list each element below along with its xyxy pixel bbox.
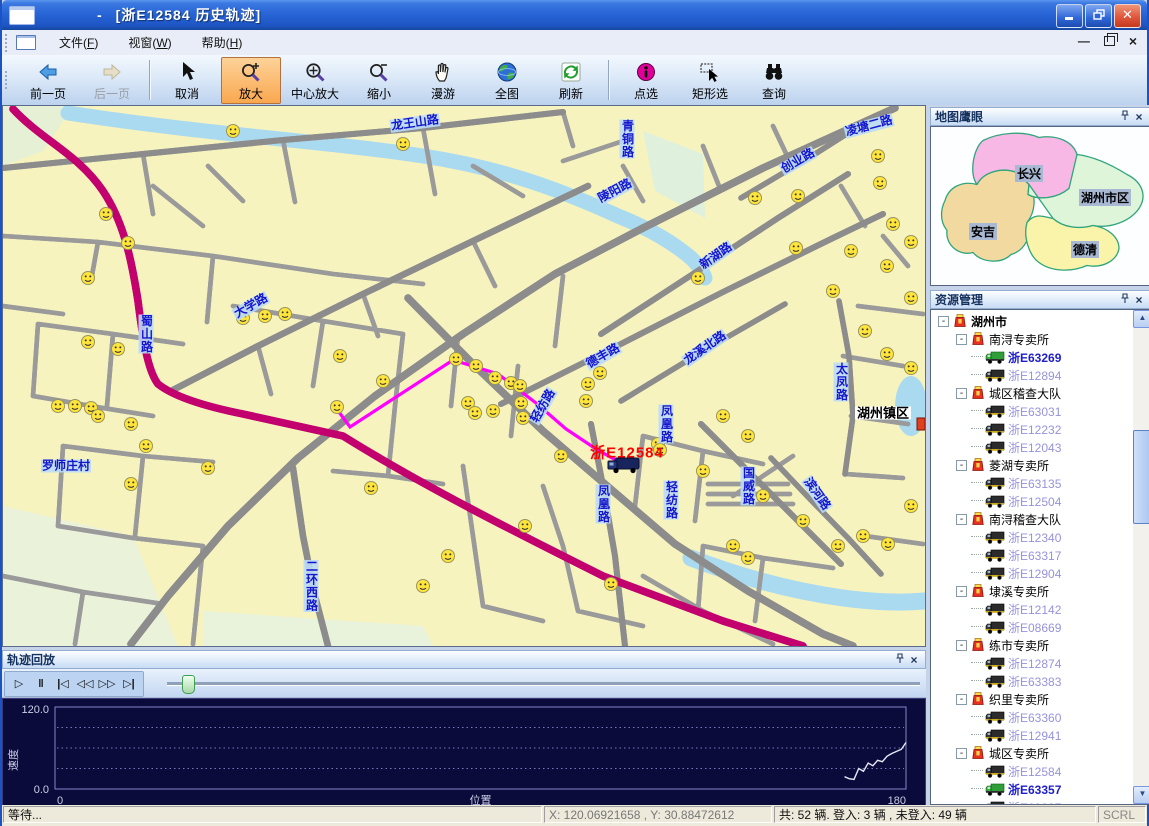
truck-dark-icon <box>985 674 1005 688</box>
smiley-marker[interactable] <box>594 367 607 380</box>
tree-row[interactable]: 浙E08669 <box>931 618 1133 636</box>
cancel-button[interactable]: 取消 <box>157 57 217 104</box>
tree-row[interactable]: 浙E12904 <box>931 564 1133 582</box>
zoom-out-button[interactable]: 缩小 <box>349 57 409 104</box>
refresh-button[interactable]: 刷新 <box>541 57 601 104</box>
org-icon <box>970 331 986 347</box>
playback-controls: ▷‖|◁◁◁▷▷▷| <box>2 669 926 698</box>
resources-title: 资源管理 <box>935 291 1118 308</box>
smiley-marker[interactable] <box>397 138 410 151</box>
vehicle-plate-label: 浙E12504 <box>1008 493 1061 510</box>
smiley-marker[interactable] <box>377 375 390 388</box>
vehicle-plate-label: 浙E12941 <box>1008 727 1061 744</box>
smiley-marker[interactable] <box>582 378 595 391</box>
scroll-down-icon[interactable]: ▼ <box>1133 786 1149 804</box>
tree-node-label: 练市专卖所 <box>989 637 1049 654</box>
smiley-marker[interactable] <box>450 353 463 366</box>
tree-row[interactable]: 浙E12941 <box>931 726 1133 744</box>
org-icon <box>970 385 986 401</box>
collapse-icon[interactable]: - <box>956 586 967 597</box>
region-label-deqing: 德清 <box>1071 241 1099 258</box>
org-icon <box>970 457 986 473</box>
smiley-marker[interactable] <box>881 348 894 361</box>
truck-dark-icon <box>985 728 1005 742</box>
status-message: 等待... <box>3 806 542 823</box>
truck-dark-icon <box>985 620 1005 634</box>
smiley-marker[interactable] <box>692 272 705 285</box>
collapse-icon[interactable]: - <box>938 316 949 327</box>
vehicle-plate-label: 浙E12904 <box>1008 565 1061 582</box>
smiley-marker[interactable] <box>112 343 125 356</box>
tree-row[interactable]: 浙E63269 <box>931 348 1133 366</box>
tree-node-label: 菱湖专卖所 <box>989 457 1049 474</box>
cursor-icon <box>175 60 199 84</box>
smiley-marker[interactable] <box>470 360 483 373</box>
tree-node-label: 南浔稽查大队 <box>989 511 1061 528</box>
collapse-icon[interactable]: - <box>956 694 967 705</box>
smiley-marker[interactable] <box>697 465 710 478</box>
tree-node-label: 城区稽查大队 <box>989 385 1061 402</box>
close-icon[interactable]: × <box>1132 293 1146 307</box>
smiley-marker[interactable] <box>874 177 887 190</box>
tree-node-label: 埭溪专卖所 <box>989 583 1049 600</box>
resources-header: 资源管理 × <box>930 290 1149 309</box>
title-dash: - <box>97 7 102 23</box>
smiley-marker[interactable] <box>69 400 82 413</box>
smiley-marker[interactable] <box>859 325 872 338</box>
map-viewport[interactable]: 龙王山路青铜路陵阳路创业路凌塘二路新湖路大学路蜀山路德丰路龙溪北路轻纺路轻纺路凤… <box>2 105 926 647</box>
smiley-marker[interactable] <box>905 500 918 513</box>
smiley-marker[interactable] <box>519 520 532 533</box>
minimize-button[interactable] <box>1056 4 1083 28</box>
play-button[interactable]: ▷ <box>8 674 30 694</box>
smiley-marker[interactable] <box>580 395 593 408</box>
right-dock: 地图鹰眼 × 长兴 湖州市区 安吉 德清 资 <box>930 105 1149 805</box>
truck-green-icon <box>985 350 1005 364</box>
point-select-button[interactable]: 点选 <box>616 57 676 104</box>
arrow-left-icon <box>36 60 60 84</box>
vehicle-plate-label: 浙E63360 <box>1008 709 1061 726</box>
smiley-marker[interactable] <box>82 272 95 285</box>
smiley-marker[interactable] <box>442 550 455 563</box>
tree-node-label: 城区专卖所 <box>989 745 1049 762</box>
toolbar-separator <box>149 60 150 100</box>
application-window: - [浙E12584 历史轨迹] ✕ 文件(F)视窗(W)帮助(H) — × 前… <box>0 0 1149 826</box>
status-vehicle-counts: 共: 52 辆. 登入: 3 辆 , 未登入: 49 辆 <box>774 806 1096 823</box>
tree-row[interactable]: 浙E63317 <box>931 546 1133 564</box>
tree-row[interactable]: -湖州市 <box>931 312 1133 330</box>
smiley-marker[interactable] <box>331 401 344 414</box>
full-map-button[interactable]: 全图 <box>477 57 537 104</box>
tree-row[interactable]: 浙E63383 <box>931 672 1133 690</box>
vehicle-plate-label: 浙E12043 <box>1008 439 1061 456</box>
mdi-close-button[interactable]: × <box>1129 33 1137 49</box>
poi-icon <box>917 418 925 430</box>
vehicle-plate-label: 浙E12142 <box>1008 601 1061 618</box>
tree-row[interactable]: 浙E63360 <box>931 708 1133 726</box>
tree-row[interactable]: 浙E12043 <box>931 438 1133 456</box>
truck-dark-icon <box>985 800 1005 804</box>
tree-node-label: 湖州市 <box>971 313 1007 330</box>
smiley-marker[interactable] <box>832 540 845 553</box>
smiley-marker[interactable] <box>887 218 900 231</box>
skip-end-button[interactable]: ▷| <box>118 674 140 694</box>
menu-bar: 文件(F)视窗(W)帮助(H) — × <box>2 30 1147 56</box>
smiley-marker[interactable] <box>100 208 113 221</box>
tree-row[interactable]: 浙E12894 <box>931 366 1133 384</box>
speed-chart: 120.00.0速度0180位置 <box>2 698 926 808</box>
vehicle-plate-label: 浙E09387 <box>1008 799 1061 805</box>
vehicle-plate-label: 浙E08669 <box>1008 619 1061 636</box>
app-icon <box>9 6 35 25</box>
smiley-marker[interactable] <box>417 580 430 593</box>
restore-button[interactable] <box>1085 4 1112 28</box>
slider-thumb[interactable] <box>182 675 195 694</box>
tree-row[interactable]: 浙E12504 <box>931 492 1133 510</box>
smiley-marker[interactable] <box>757 490 770 503</box>
zoom-out-icon <box>367 60 391 84</box>
mdi-child-icon[interactable] <box>16 35 36 50</box>
org-icon <box>970 511 986 527</box>
smiley-marker[interactable] <box>237 312 250 325</box>
collapse-icon[interactable]: - <box>956 460 967 471</box>
tree-row[interactable]: -埭溪专卖所 <box>931 582 1133 600</box>
smiley-marker[interactable] <box>605 578 618 591</box>
playback-title: 轨迹回放 <box>7 651 893 668</box>
smiley-marker[interactable] <box>727 540 740 553</box>
zoom-center-icon <box>303 60 327 84</box>
vehicle-plate-label: 浙E12584 <box>1008 763 1061 780</box>
smiley-marker[interactable] <box>140 440 153 453</box>
smiley-marker[interactable] <box>742 430 755 443</box>
pause-button[interactable]: ‖ <box>30 674 52 694</box>
title-bar: - [浙E12584 历史轨迹] ✕ <box>2 0 1147 30</box>
org-icon <box>970 745 986 761</box>
smiley-marker[interactable] <box>882 538 895 551</box>
tree-row[interactable]: 浙E09387 <box>931 798 1133 804</box>
org-icon <box>970 691 986 707</box>
tree-row[interactable]: 浙E63135 <box>931 474 1133 492</box>
org-icon <box>970 583 986 599</box>
skip-start-button[interactable]: |◁ <box>52 674 74 694</box>
truck-dark-icon <box>985 422 1005 436</box>
smiley-marker[interactable] <box>881 260 894 273</box>
smiley-marker[interactable] <box>905 362 918 375</box>
collapse-icon[interactable]: - <box>956 640 967 651</box>
smiley-marker[interactable] <box>905 236 918 249</box>
smiley-marker[interactable] <box>790 242 803 255</box>
smiley-marker[interactable] <box>749 192 762 205</box>
smiley-marker[interactable] <box>259 310 272 323</box>
tree-row[interactable]: -菱湖专卖所 <box>931 456 1133 474</box>
tree-row[interactable]: 浙E63357 <box>931 780 1133 798</box>
workspace: 龙王山路青铜路陵阳路创业路凌塘二路新湖路大学路蜀山路德丰路龙溪北路轻纺路轻纺路凤… <box>2 105 1149 805</box>
smiley-marker[interactable] <box>125 418 138 431</box>
truck-dark-icon <box>985 440 1005 454</box>
pan-hand-icon <box>431 60 455 84</box>
smiley-marker[interactable] <box>469 407 482 420</box>
smiley-marker[interactable] <box>797 515 810 528</box>
smiley-marker[interactable] <box>489 372 502 385</box>
menu-help[interactable]: 帮助(H) <box>193 31 252 54</box>
smiley-marker[interactable] <box>514 380 527 393</box>
vehicle-plate-label: 浙E63357 <box>1008 781 1061 798</box>
vehicle-plate-label: 浙E12232 <box>1008 421 1061 438</box>
tree-row[interactable]: 浙E63031 <box>931 402 1133 420</box>
smiley-marker[interactable] <box>742 552 755 565</box>
scroll-up-icon[interactable]: ▲ <box>1133 310 1149 328</box>
smiley-marker[interactable] <box>279 308 292 321</box>
zoom-in-icon <box>239 60 263 84</box>
eagle-eye-map[interactable]: 长兴 湖州市区 安吉 德清 <box>930 126 1149 286</box>
region-label-anji: 安吉 <box>969 223 997 240</box>
tree-row[interactable]: -城区稽查大队 <box>931 384 1133 402</box>
toolbar: 前一页后一页取消放大中心放大缩小漫游全图刷新点选矩形选查询 <box>2 55 1147 107</box>
truck-dark-icon <box>985 494 1005 508</box>
pan-button[interactable]: 漫游 <box>413 57 473 104</box>
tree-row[interactable]: 浙E12340 <box>931 528 1133 546</box>
smiley-marker[interactable] <box>227 125 240 138</box>
truck-dark-icon <box>985 548 1005 562</box>
playback-header: 轨迹回放 × <box>2 650 926 669</box>
smiley-marker[interactable] <box>555 450 568 463</box>
query-button[interactable]: 查询 <box>744 57 804 104</box>
tree-row[interactable]: 浙E12874 <box>931 654 1133 672</box>
prev-page-button[interactable]: 前一页 <box>18 57 78 104</box>
smiley-marker[interactable] <box>365 482 378 495</box>
smiley-marker[interactable] <box>517 412 530 425</box>
info-select-icon <box>634 60 658 84</box>
tree-row[interactable]: -南浔专卖所 <box>931 330 1133 348</box>
truck-dark-icon <box>985 368 1005 382</box>
tree-row[interactable]: -城区专卖所 <box>931 744 1133 762</box>
smiley-marker[interactable] <box>52 400 65 413</box>
region-label-huzhou: 湖州市区 <box>1079 189 1131 206</box>
vehicle-plate-label: 浙E63269 <box>1008 349 1061 366</box>
org-icon <box>952 313 968 329</box>
resource-tree: -湖州市-南浔专卖所浙E63269浙E12894-城区稽查大队浙E63031浙E… <box>931 310 1133 804</box>
tree-row[interactable]: 浙E12142 <box>931 600 1133 618</box>
resource-tree-panel: -湖州市-南浔专卖所浙E63269浙E12894-城区稽查大队浙E63031浙E… <box>930 309 1149 805</box>
menu-grip[interactable] <box>5 34 12 52</box>
pin-icon[interactable] <box>893 653 907 667</box>
smiley-marker[interactable] <box>845 245 858 258</box>
collapse-icon[interactable]: - <box>956 748 967 759</box>
vehicle-plate-label: 浙E63135 <box>1008 475 1061 492</box>
menu-file[interactable]: 文件(F) <box>50 31 107 54</box>
truck-dark-icon <box>985 602 1005 616</box>
smiley-marker[interactable] <box>202 462 215 475</box>
truck-green-icon <box>985 782 1005 796</box>
status-bar: 等待... X: 120.06921658 , Y: 30.88472612 共… <box>2 805 1147 826</box>
toolbar-grip[interactable] <box>5 71 12 89</box>
pin-icon[interactable] <box>1118 110 1132 124</box>
fast-forward-button[interactable]: ▷▷ <box>96 674 118 694</box>
smiley-marker[interactable] <box>827 285 840 298</box>
truck-dark-icon <box>985 476 1005 490</box>
tree-row[interactable]: 浙E12584 <box>931 762 1133 780</box>
smiley-marker[interactable] <box>792 190 805 203</box>
playback-panel: 轨迹回放 × ▷‖|◁◁◁▷▷▷| 120.00.0速度0180位置 <box>2 650 926 808</box>
org-icon <box>970 637 986 653</box>
rect-select-icon <box>698 60 722 84</box>
binoculars-icon <box>762 60 786 84</box>
tree-scrollbar[interactable]: ▲ ▼ <box>1133 310 1149 804</box>
truck-dark-icon <box>985 656 1005 670</box>
status-scroll-lock: SCRL <box>1098 806 1146 823</box>
playback-slider[interactable] <box>167 675 920 691</box>
close-icon[interactable]: × <box>907 653 921 667</box>
truck-dark-icon <box>985 764 1005 778</box>
scroll-thumb[interactable] <box>1133 430 1149 524</box>
svg-text:120.0: 120.0 <box>21 704 49 716</box>
smiley-marker[interactable] <box>515 397 528 410</box>
slider-groove[interactable] <box>167 682 920 686</box>
globe-icon <box>495 60 519 84</box>
vehicle-plate-label: 浙E12894 <box>1008 367 1061 384</box>
smiley-marker[interactable] <box>905 292 918 305</box>
smiley-marker[interactable] <box>857 530 870 543</box>
vehicle-plate-label: 浙E12874 <box>1008 655 1061 672</box>
pin-icon[interactable] <box>1118 293 1132 307</box>
rect-select-button[interactable]: 矩形选 <box>680 57 740 104</box>
arrow-right-icon <box>100 60 124 84</box>
smiley-marker[interactable] <box>654 444 667 457</box>
vehicle-plate-label: 浙E63031 <box>1008 403 1061 420</box>
collapse-icon[interactable]: - <box>956 334 967 345</box>
smiley-marker[interactable] <box>92 410 105 423</box>
mdi-restore-button[interactable] <box>1104 36 1115 46</box>
vehicle-plate-label: 浙E12340 <box>1008 529 1061 546</box>
tree-row[interactable]: -南浔稽查大队 <box>931 510 1133 528</box>
vehicle-plate-label: 浙E63317 <box>1008 547 1061 564</box>
tree-node-label: 南浔专卖所 <box>989 331 1049 348</box>
next-page-button[interactable]: 后一页 <box>82 57 142 104</box>
close-icon[interactable]: × <box>1132 110 1146 124</box>
vehicle-plate-label: 浙E63383 <box>1008 673 1061 690</box>
svg-text:0.0: 0.0 <box>34 784 49 796</box>
center-zoom-button[interactable]: 中心放大 <box>285 57 345 104</box>
smiley-marker[interactable] <box>82 336 95 349</box>
rewind-button[interactable]: ◁◁ <box>74 674 96 694</box>
collapse-icon[interactable]: - <box>956 514 967 525</box>
truck-dark-icon <box>985 710 1005 724</box>
smiley-marker[interactable] <box>487 405 500 418</box>
zoom-in-button[interactable]: 放大 <box>221 57 281 104</box>
tree-row[interactable]: 浙E12232 <box>931 420 1133 438</box>
smiley-marker[interactable] <box>125 478 138 491</box>
close-button[interactable]: ✕ <box>1114 4 1141 28</box>
smiley-marker[interactable] <box>717 410 730 423</box>
refresh-icon <box>559 60 583 84</box>
tree-node-label: 织里专卖所 <box>989 691 1049 708</box>
truck-dark-icon <box>985 530 1005 544</box>
status-coordinates: X: 120.06921658 , Y: 30.88472612 <box>544 806 772 823</box>
mdi-minimize-button[interactable]: — <box>1078 34 1090 48</box>
smiley-marker[interactable] <box>872 150 885 163</box>
window-title: [浙E12584 历史轨迹] <box>116 5 261 25</box>
region-anji[interactable] <box>942 170 1035 261</box>
eagle-eye-title: 地图鹰眼 <box>935 108 1118 125</box>
menu-window[interactable]: 视窗(W) <box>119 31 180 54</box>
toolbar-separator <box>608 60 609 100</box>
smiley-marker[interactable] <box>122 237 135 250</box>
collapse-icon[interactable]: - <box>956 388 967 399</box>
map-canvas[interactable] <box>3 106 925 646</box>
tree-row[interactable]: -织里专卖所 <box>931 690 1133 708</box>
tree-row[interactable]: -练市专卖所 <box>931 636 1133 654</box>
eagle-eye-header: 地图鹰眼 × <box>930 107 1149 126</box>
svg-text:速度: 速度 <box>6 749 20 771</box>
region-label-changxing: 长兴 <box>1015 165 1043 182</box>
smiley-marker[interactable] <box>334 350 347 363</box>
truck-dark-icon <box>985 404 1005 418</box>
truck-dark-icon <box>985 566 1005 580</box>
